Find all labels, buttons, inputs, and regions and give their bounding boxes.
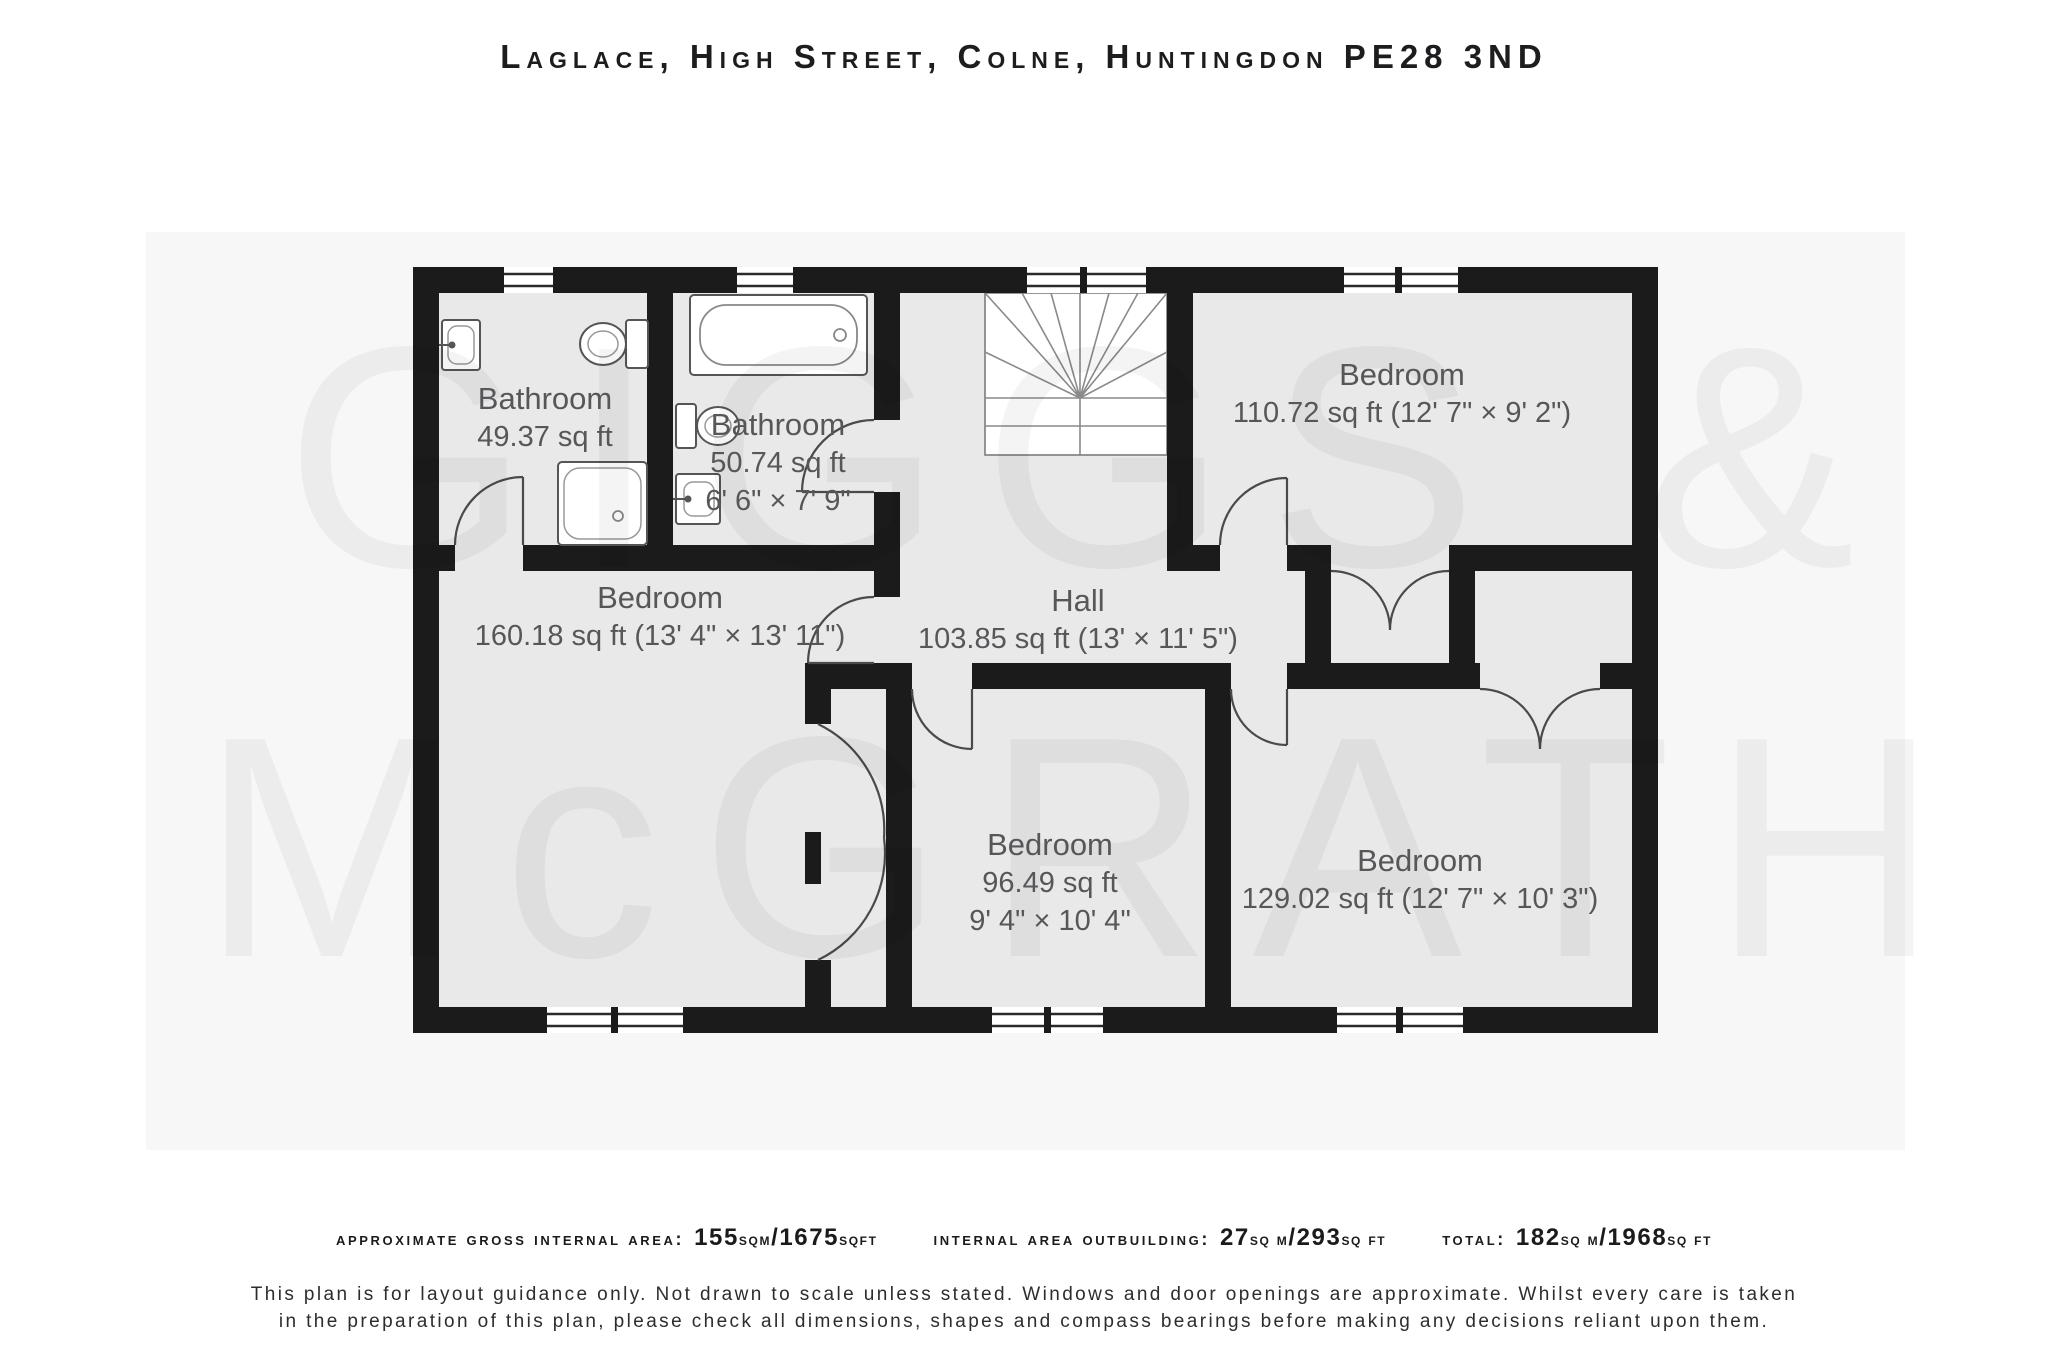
area-summary: approximate gross internal area:155sqm/1…: [0, 1224, 2048, 1252]
total-area: total:182sq m/1968sq ft: [1442, 1224, 1712, 1252]
room-label-bedroom-top-right: Bedroom 110.72 sq ft (12' 7" × 9' 2"): [1233, 356, 1571, 432]
shower: [558, 462, 647, 545]
window: [985, 1007, 1110, 1033]
room-area: 160.18 sq ft (13' 4" × 13' 11"): [475, 617, 846, 655]
room-area: 103.85 sq ft (13' × 11' 5"): [918, 620, 1238, 658]
disclaimer: This plan is for layout guidance only. N…: [0, 1281, 2048, 1335]
gross-internal-area: approximate gross internal area:155sqm/1…: [336, 1224, 878, 1252]
room-name: Bathroom: [477, 380, 612, 418]
floor-plan: [0, 0, 2048, 1365]
room-dims: 6' 6" × 7' 9": [705, 482, 850, 520]
room-area: 50.74 sq ft: [705, 444, 850, 482]
room-label-bedroom-middle: Bedroom 96.49 sq ft 9' 4" × 10' 4": [969, 826, 1130, 940]
disclaimer-line-2: in the preparation of this plan, please …: [0, 1308, 2048, 1335]
sink: [439, 320, 480, 370]
room-area: 96.49 sq ft: [969, 864, 1130, 902]
window: [1330, 1007, 1470, 1033]
window: [497, 267, 560, 293]
room-label-bedroom-bottom-right: Bedroom 129.02 sq ft (12' 7" × 10' 3"): [1242, 842, 1599, 918]
room-name: Hall: [918, 582, 1238, 620]
room-name: Bedroom: [969, 826, 1130, 864]
room-area: 129.02 sq ft (12' 7" × 10' 3"): [1242, 880, 1599, 918]
outbuilding-area: internal area outbuilding:27sq m/293sq f…: [934, 1224, 1387, 1252]
window: [730, 267, 800, 293]
room-dims: 9' 4" × 10' 4": [969, 902, 1130, 940]
page: Laglace, High Street, Colne, Huntingdon …: [0, 0, 2048, 1365]
window: [540, 1007, 690, 1033]
room-label-bedroom-left: Bedroom 160.18 sq ft (13' 4" × 13' 11"): [475, 579, 846, 655]
room-label-hall: Hall 103.85 sq ft (13' × 11' 5"): [918, 582, 1238, 658]
room-area: 110.72 sq ft (12' 7" × 9' 2"): [1233, 394, 1571, 432]
toilet: [580, 320, 648, 368]
window: [1020, 267, 1153, 293]
room-name: Bathroom: [705, 406, 850, 444]
room-name: Bedroom: [475, 579, 846, 617]
disclaimer-line-1: This plan is for layout guidance only. N…: [0, 1281, 2048, 1308]
room-name: Bedroom: [1242, 842, 1599, 880]
staircase: [985, 293, 1167, 455]
room-name: Bedroom: [1233, 356, 1571, 394]
bathtub: [690, 295, 867, 375]
room-area: 49.37 sq ft: [477, 418, 612, 456]
room-label-bathroom-2: Bathroom 50.74 sq ft 6' 6" × 7' 9": [705, 406, 850, 520]
room-label-bathroom-1: Bathroom 49.37 sq ft: [477, 380, 612, 456]
window: [1337, 267, 1465, 293]
